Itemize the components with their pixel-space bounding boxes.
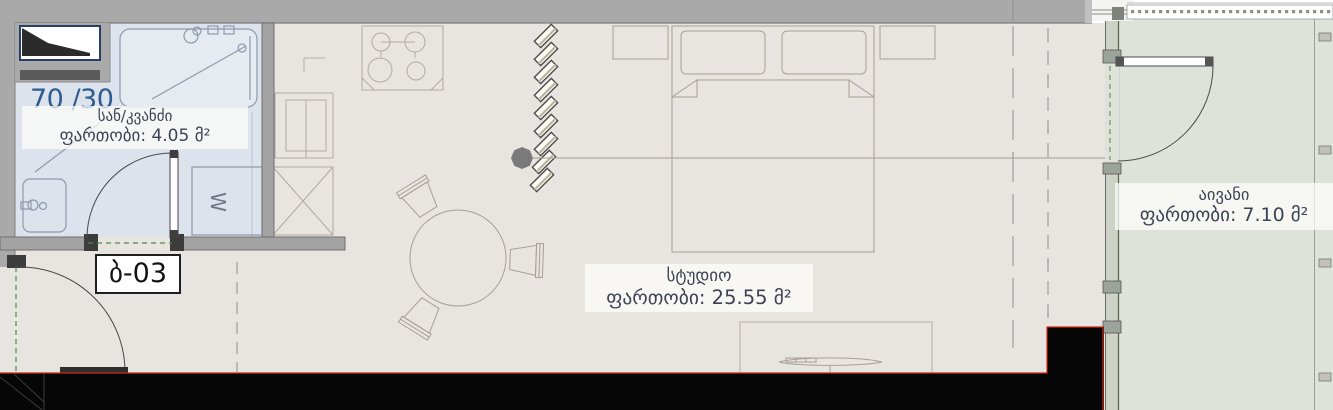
bathroom-area: ფართობი: 4.05 მ² [22, 126, 248, 146]
unit-number-badge: ბ-03 [95, 254, 181, 294]
top-wall [0, 0, 1092, 23]
left-wall [0, 0, 15, 267]
balcony-name: აივანი [1115, 185, 1333, 204]
balcony-label: აივანი ფართობი: 7.10 მ² [1115, 183, 1333, 230]
bathroom-name: სან/კვანძი [22, 108, 248, 126]
floor-plan: 70 /30 სან/კვანძი ფართობი: 4.05 მ² ბ-03 … [0, 0, 1333, 410]
studio-name: სტუდიო [585, 266, 813, 286]
balcony-area: ფართობი: 7.10 მ² [1115, 204, 1333, 226]
column [511, 147, 533, 169]
studio-area: ფართობი: 25.55 მ² [585, 286, 813, 309]
washing-machine-label: W [206, 192, 230, 212]
studio-label: სტუდიო ფართობი: 25.55 მ² [585, 264, 813, 312]
vent-shaft [20, 26, 100, 80]
bathroom-label: სან/კვანძი ფართობი: 4.05 მ² [22, 106, 248, 149]
